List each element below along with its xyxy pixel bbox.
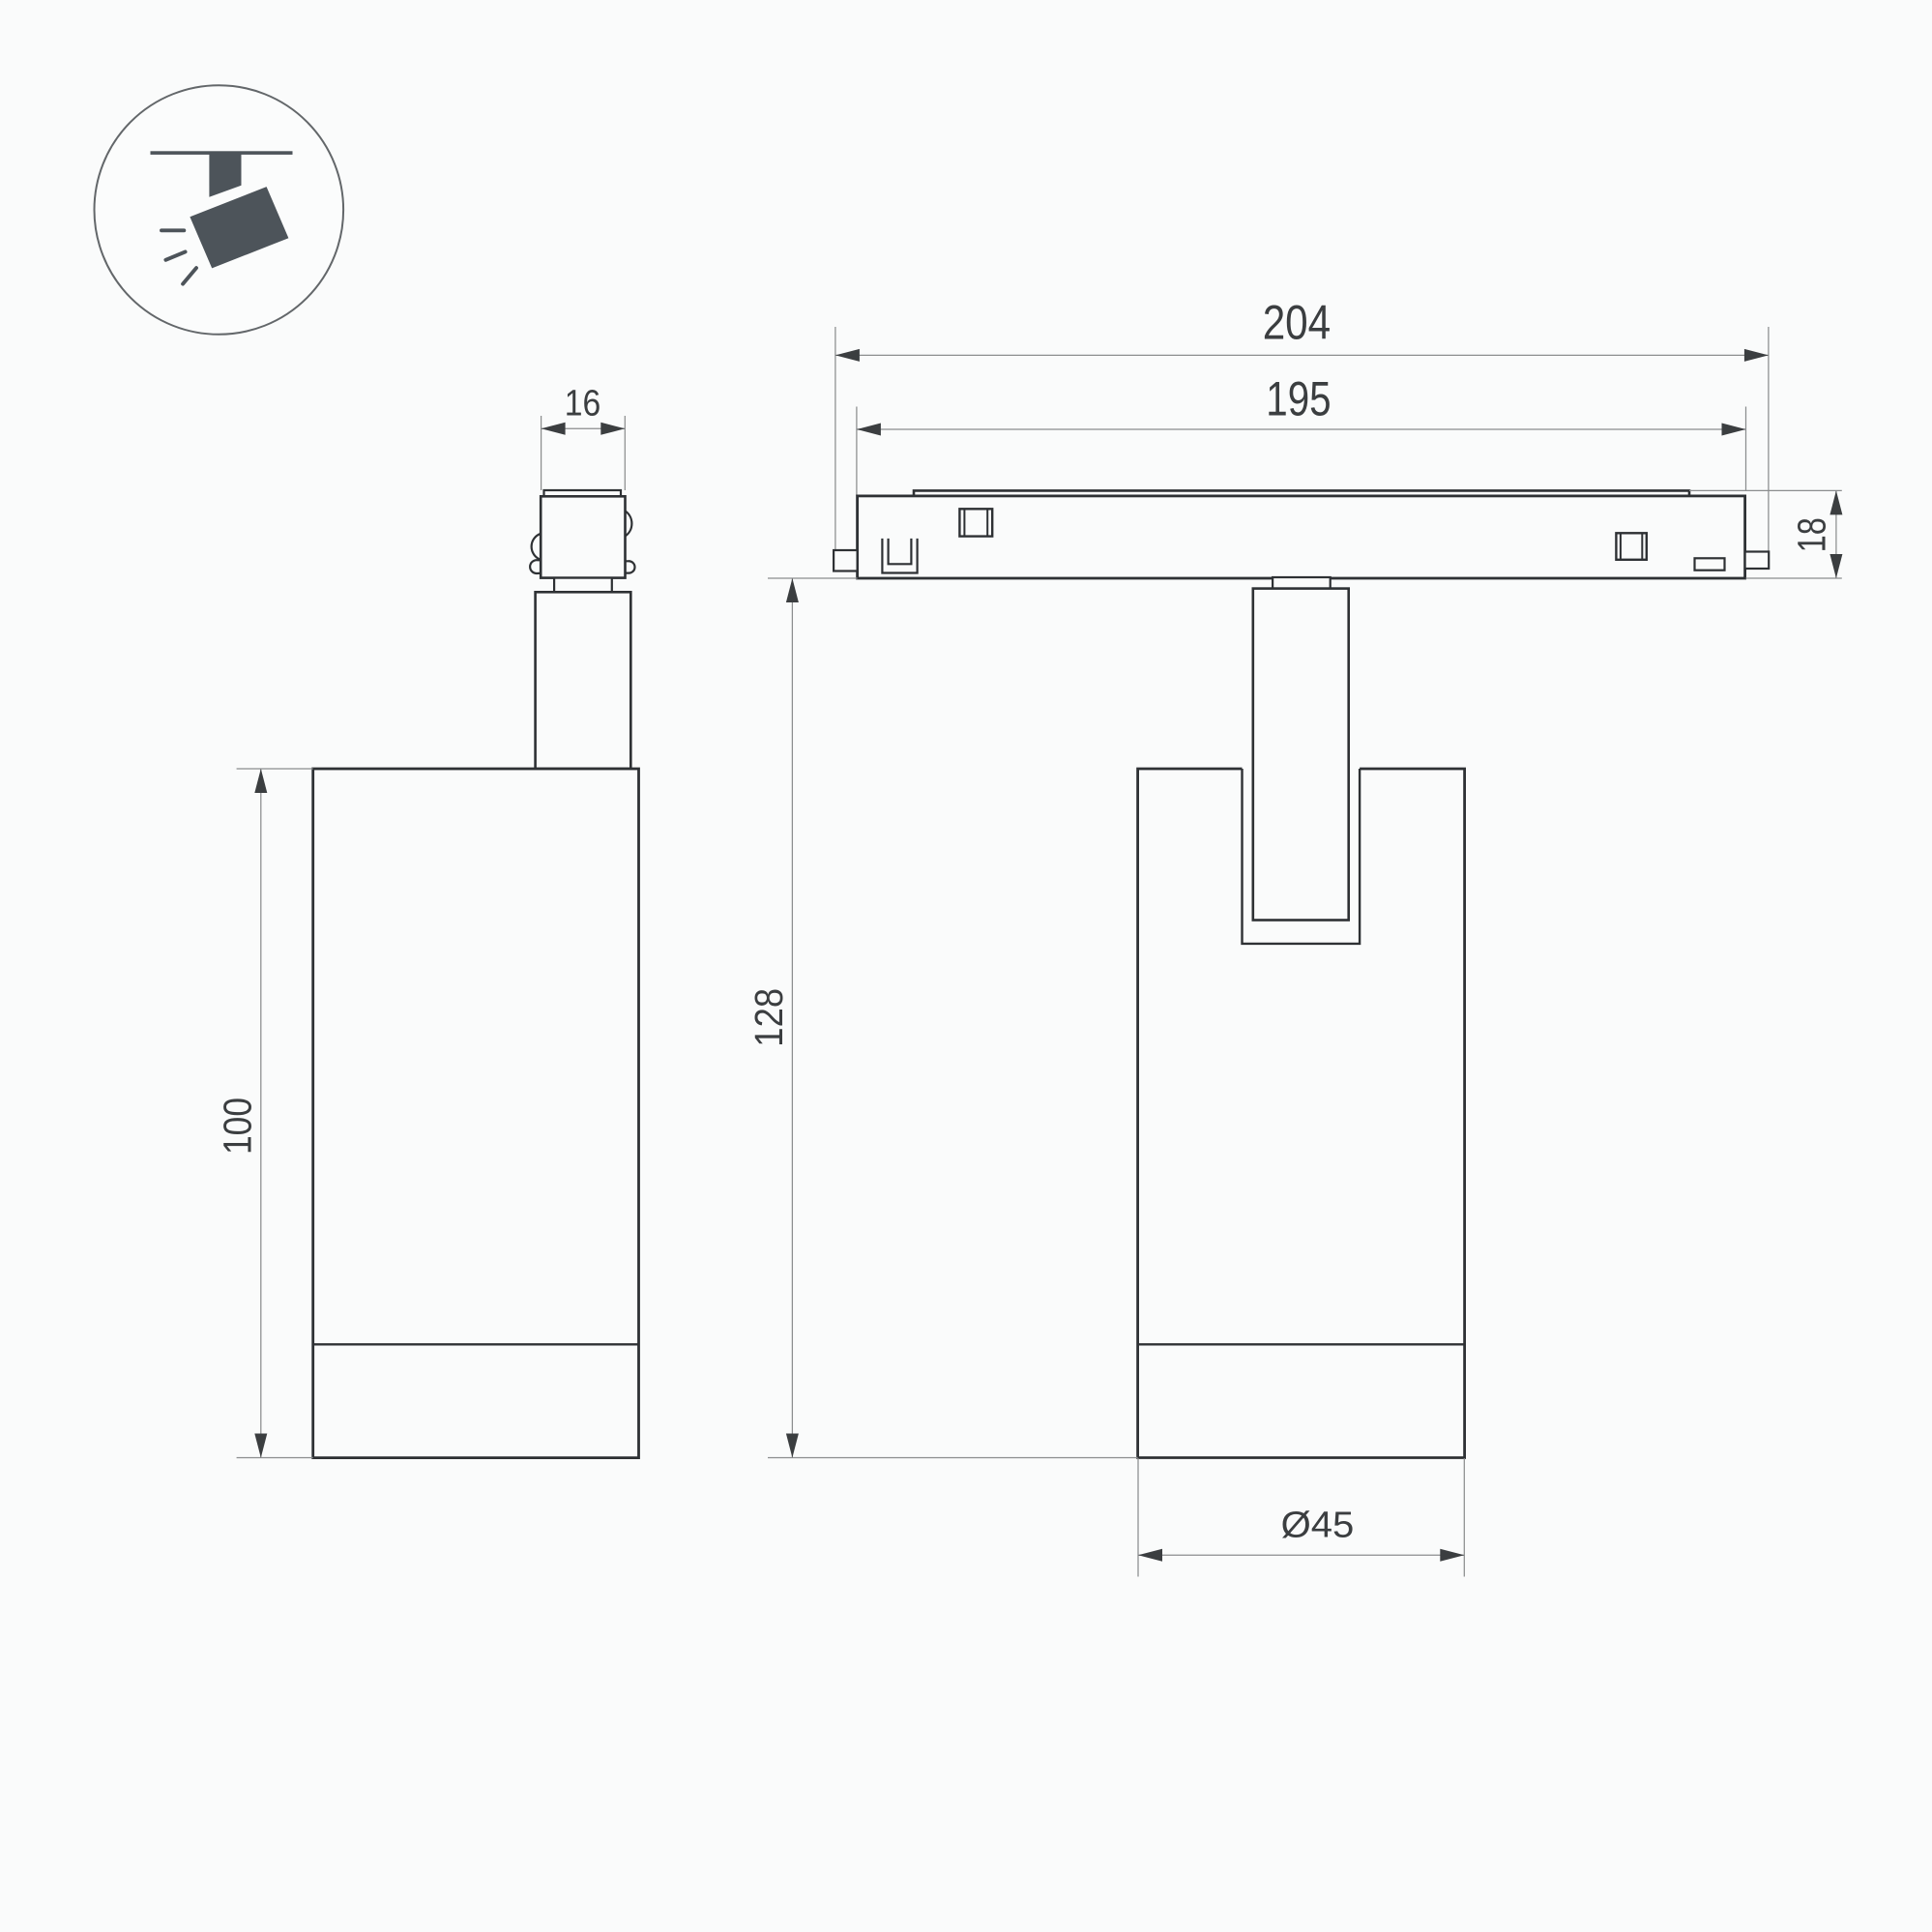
svg-text:204: 204 (1263, 295, 1332, 350)
svg-text:100: 100 (215, 1098, 259, 1155)
svg-text:128: 128 (746, 988, 791, 1047)
svg-text:18: 18 (1789, 517, 1833, 552)
svg-text:195: 195 (1266, 371, 1331, 426)
svg-text:Ø45: Ø45 (1281, 1506, 1355, 1546)
svg-text:16: 16 (565, 384, 601, 424)
